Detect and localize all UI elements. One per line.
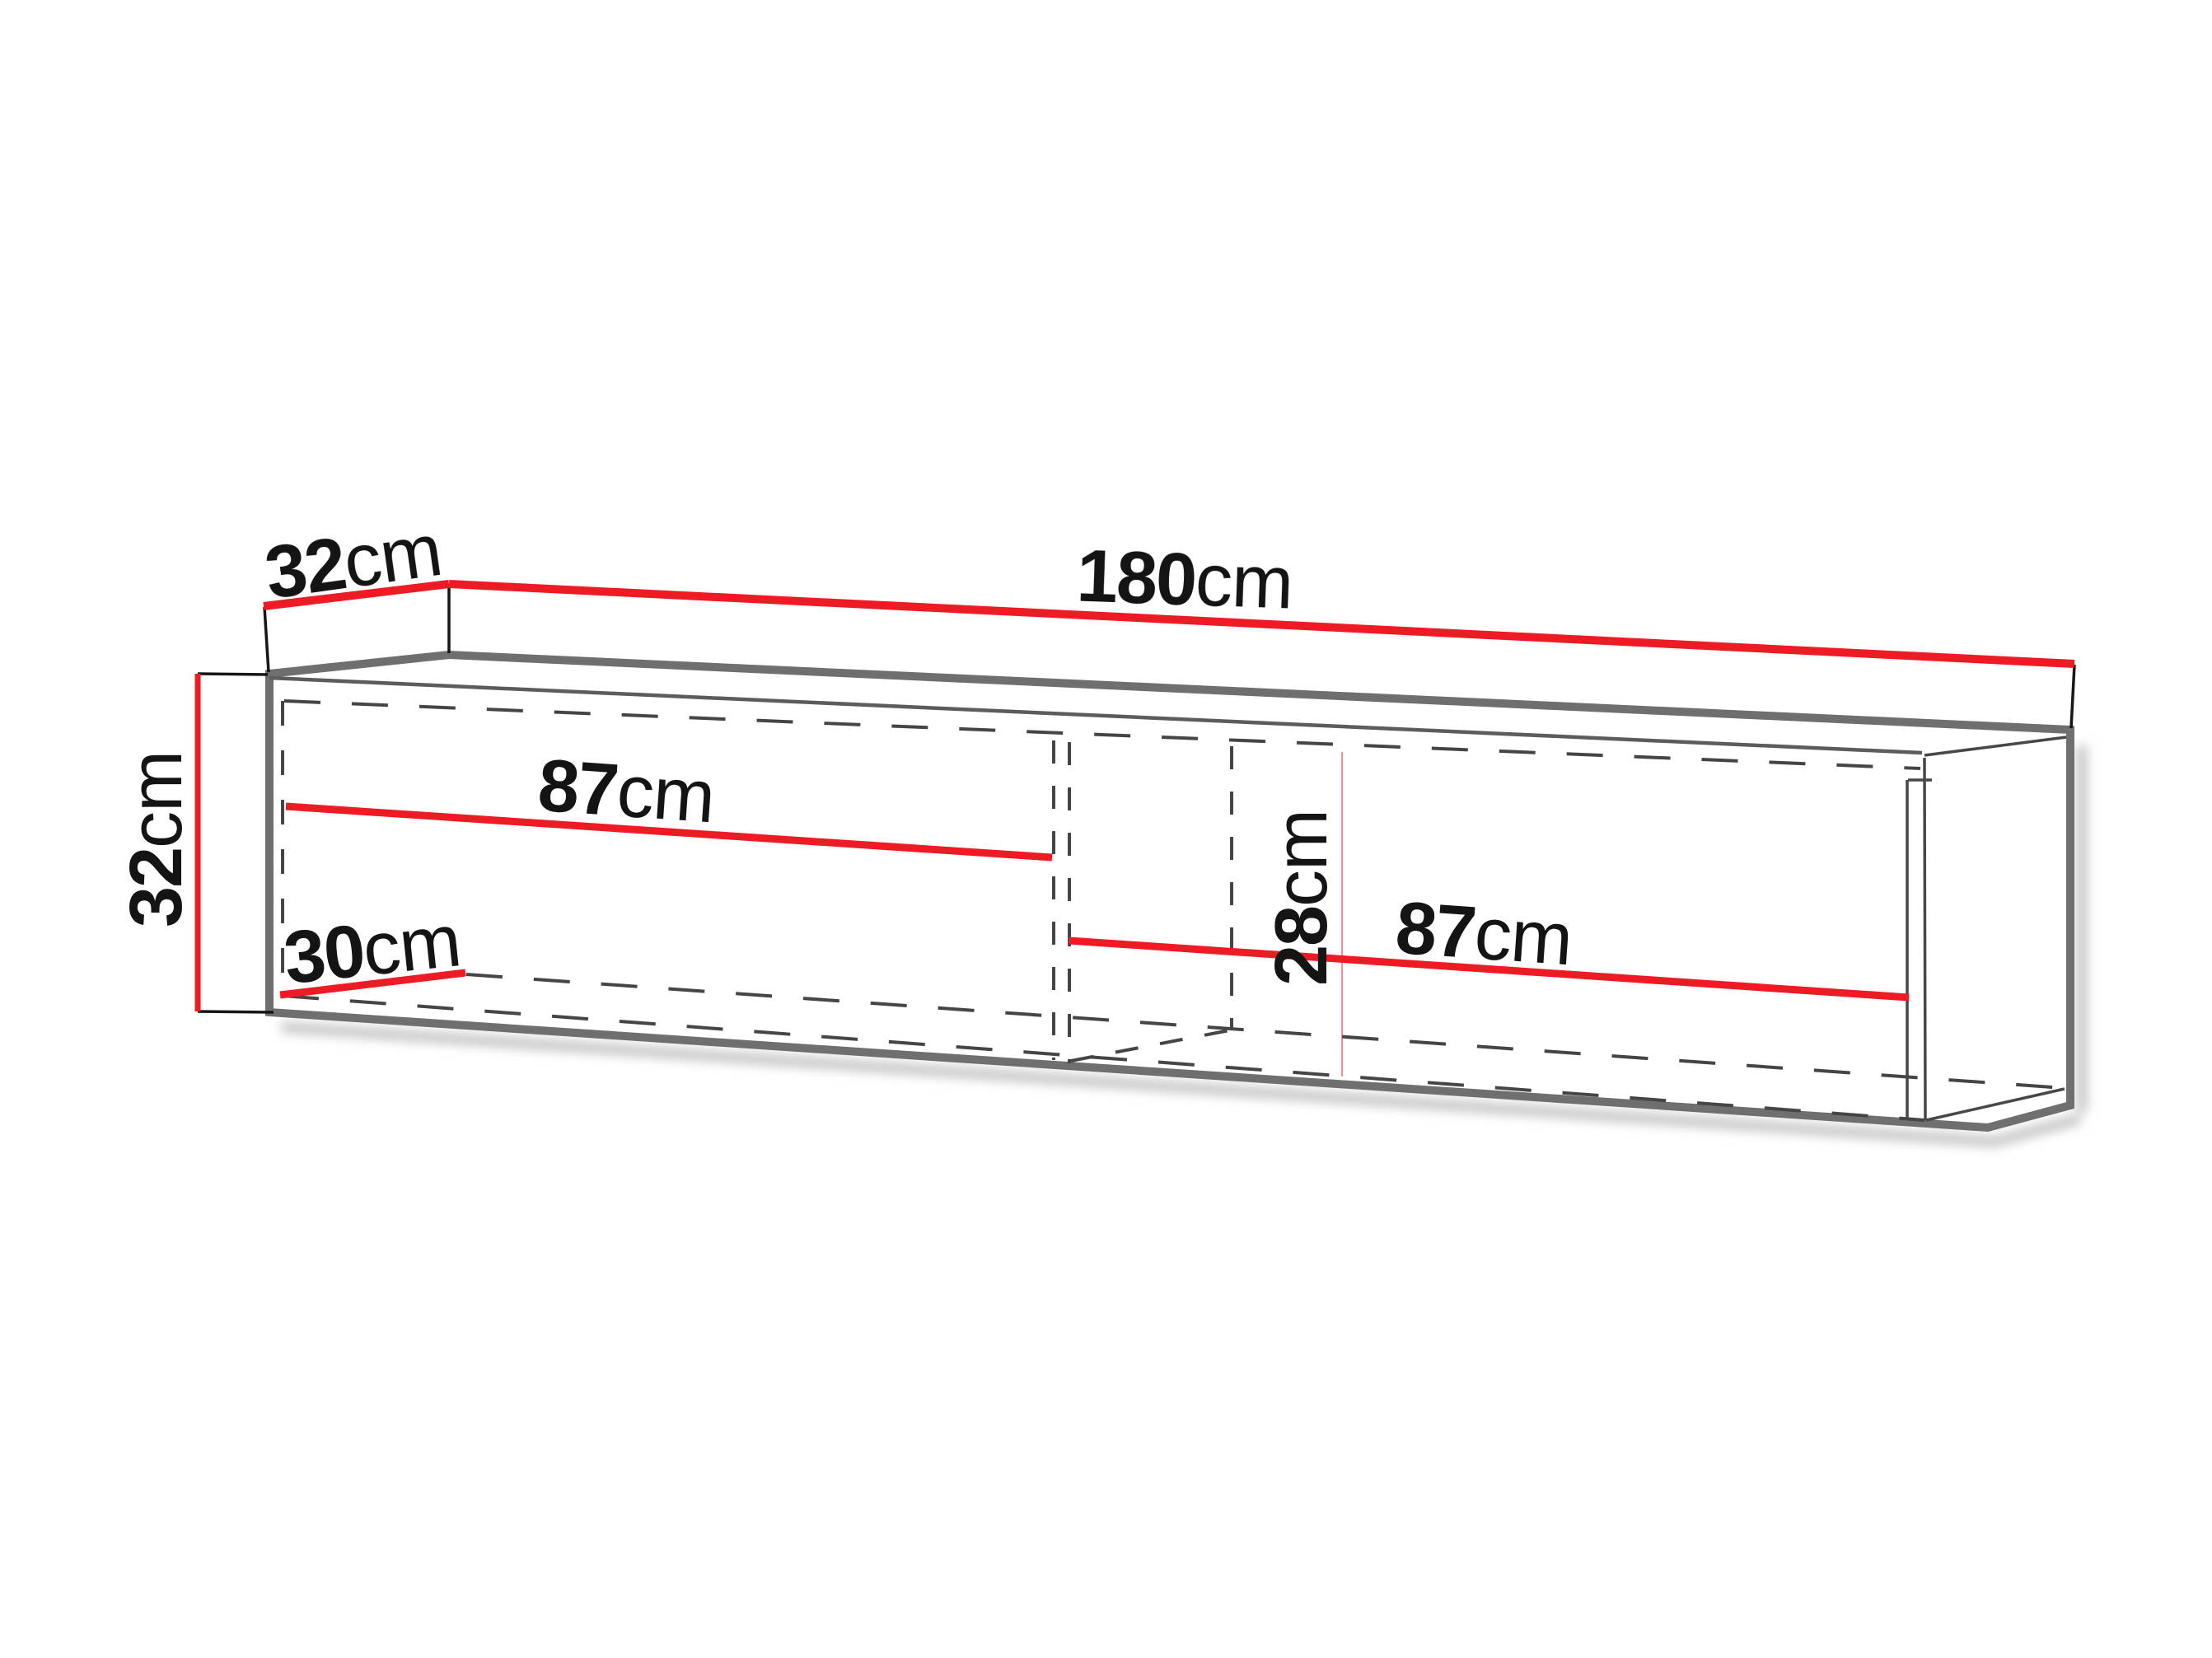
dimension-labels: 32cm 180cm 32cm 87cm 30cm 28cm 87cm xyxy=(115,509,1574,1000)
furniture-dimension-diagram: 32cm 180cm 32cm 87cm 30cm 28cm 87cm xyxy=(0,0,2212,1658)
left-compartment-width-unit: cm xyxy=(615,750,718,838)
left-compartment-width-value: 87 xyxy=(535,745,620,832)
width-dim-right-extension xyxy=(2071,665,2074,728)
top-width-unit: cm xyxy=(1194,539,1293,625)
right-compartment-width-value: 87 xyxy=(1393,887,1478,974)
left-height-dimension-label: 32cm xyxy=(115,751,198,927)
height-dim-bottom-tick xyxy=(198,1011,274,1012)
diagram-canvas: 32cm 180cm 32cm 87cm 30cm 28cm 87cm xyxy=(0,0,2212,1658)
left-compartment-width-label: 87cm xyxy=(535,745,718,839)
left-compartment-depth-unit: cm xyxy=(359,899,465,992)
depth-dim-front-extension xyxy=(264,607,269,672)
cabinet-outline xyxy=(269,655,2070,1128)
top-depth-value: 32 xyxy=(260,522,350,614)
right-compartment-width-unit: cm xyxy=(1472,892,1575,981)
interior-height-value: 28 xyxy=(1260,907,1343,986)
interior-height-label: 28cm xyxy=(1260,810,1343,986)
inner-right-top-depth-edge xyxy=(1924,737,2066,755)
bottom-edge-shadow xyxy=(282,1027,2080,1142)
left-height-value: 32 xyxy=(115,848,198,927)
top-depth-dimension-label: 32cm xyxy=(260,509,447,615)
height-dim-top-tick xyxy=(198,674,268,675)
interior-bottom-front-edge-dashed xyxy=(283,996,1924,1120)
cabinet-outer-outline xyxy=(269,655,2070,1128)
left-height-unit: cm xyxy=(115,751,198,848)
top-depth-unit: cm xyxy=(339,509,447,604)
top-width-value: 180 xyxy=(1075,535,1197,621)
inner-right-wall-front-edge xyxy=(1924,758,1925,1120)
top-width-dimension-label: 180cm xyxy=(1075,535,1293,624)
right-compartment-width-label: 87cm xyxy=(1393,887,1575,982)
left-compartment-depth-label: 30cm xyxy=(280,899,464,1000)
interior-height-unit: cm xyxy=(1260,810,1343,907)
left-compartment-depth-value: 30 xyxy=(280,910,367,1000)
